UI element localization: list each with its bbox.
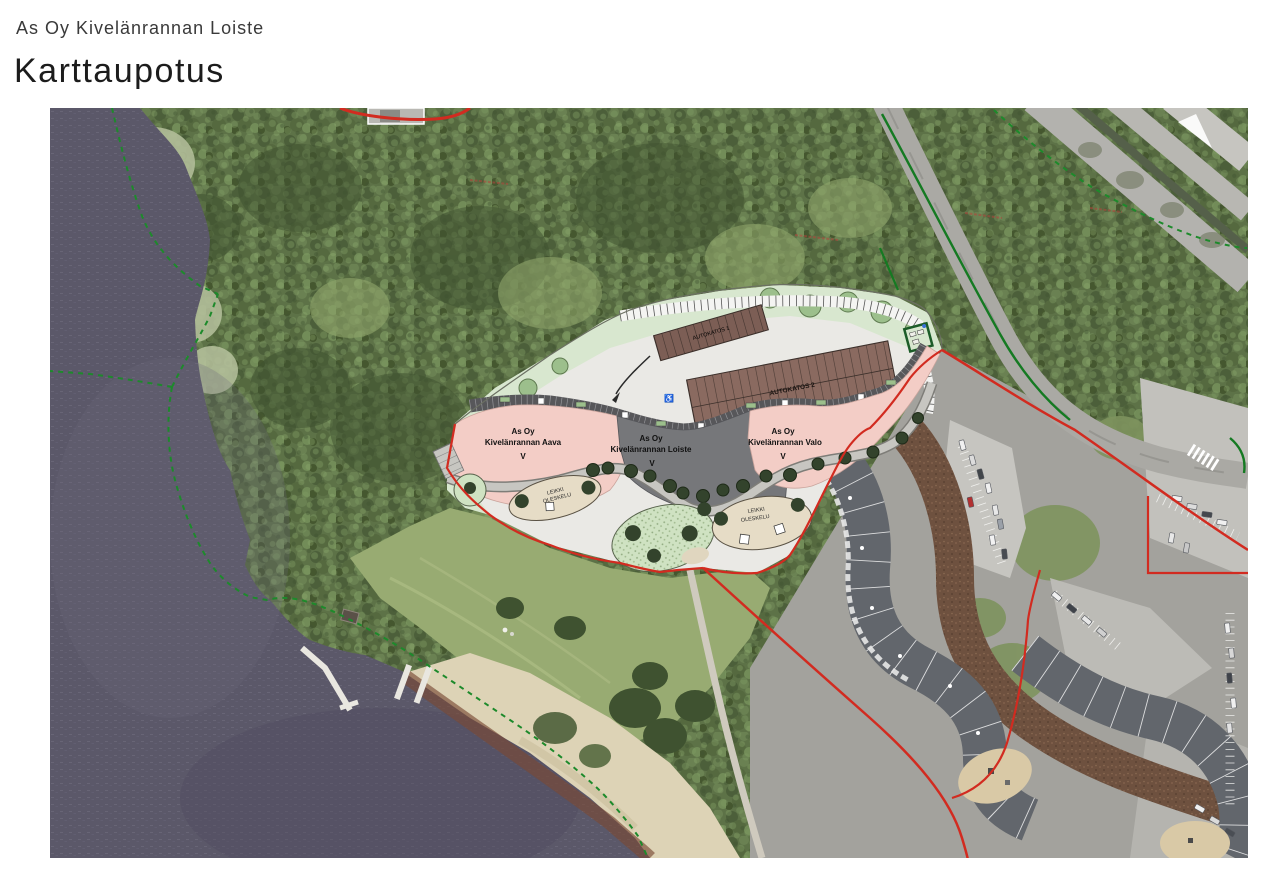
- loiste-label-line1: As Oy: [639, 434, 663, 443]
- page-title: Karttaupotus: [14, 52, 225, 91]
- aava-label-line1: As Oy: [511, 427, 535, 436]
- document-page: { "page": { "subtitle": "As Oy Kivelänra…: [0, 0, 1279, 884]
- aava-label-line2: Kivelänrannan Aava: [485, 438, 562, 447]
- disabled-parking-icon: ♿: [664, 393, 674, 403]
- loiste-label-line2: Kivelänrannan Loiste: [611, 445, 692, 454]
- valo-label-line2: Kivelänrannan Valo: [748, 438, 822, 447]
- aava-label-floors: V: [520, 452, 526, 461]
- valo-label-floors: V: [780, 452, 786, 461]
- map-embed: AUTOKATOS 1 AUTOKATOS 2 ♿: [50, 108, 1248, 858]
- document-subtitle: As Oy Kivelänrannan Loiste: [16, 18, 264, 39]
- loiste-label-floors: V: [649, 459, 655, 468]
- valo-label-line1: As Oy: [771, 427, 795, 436]
